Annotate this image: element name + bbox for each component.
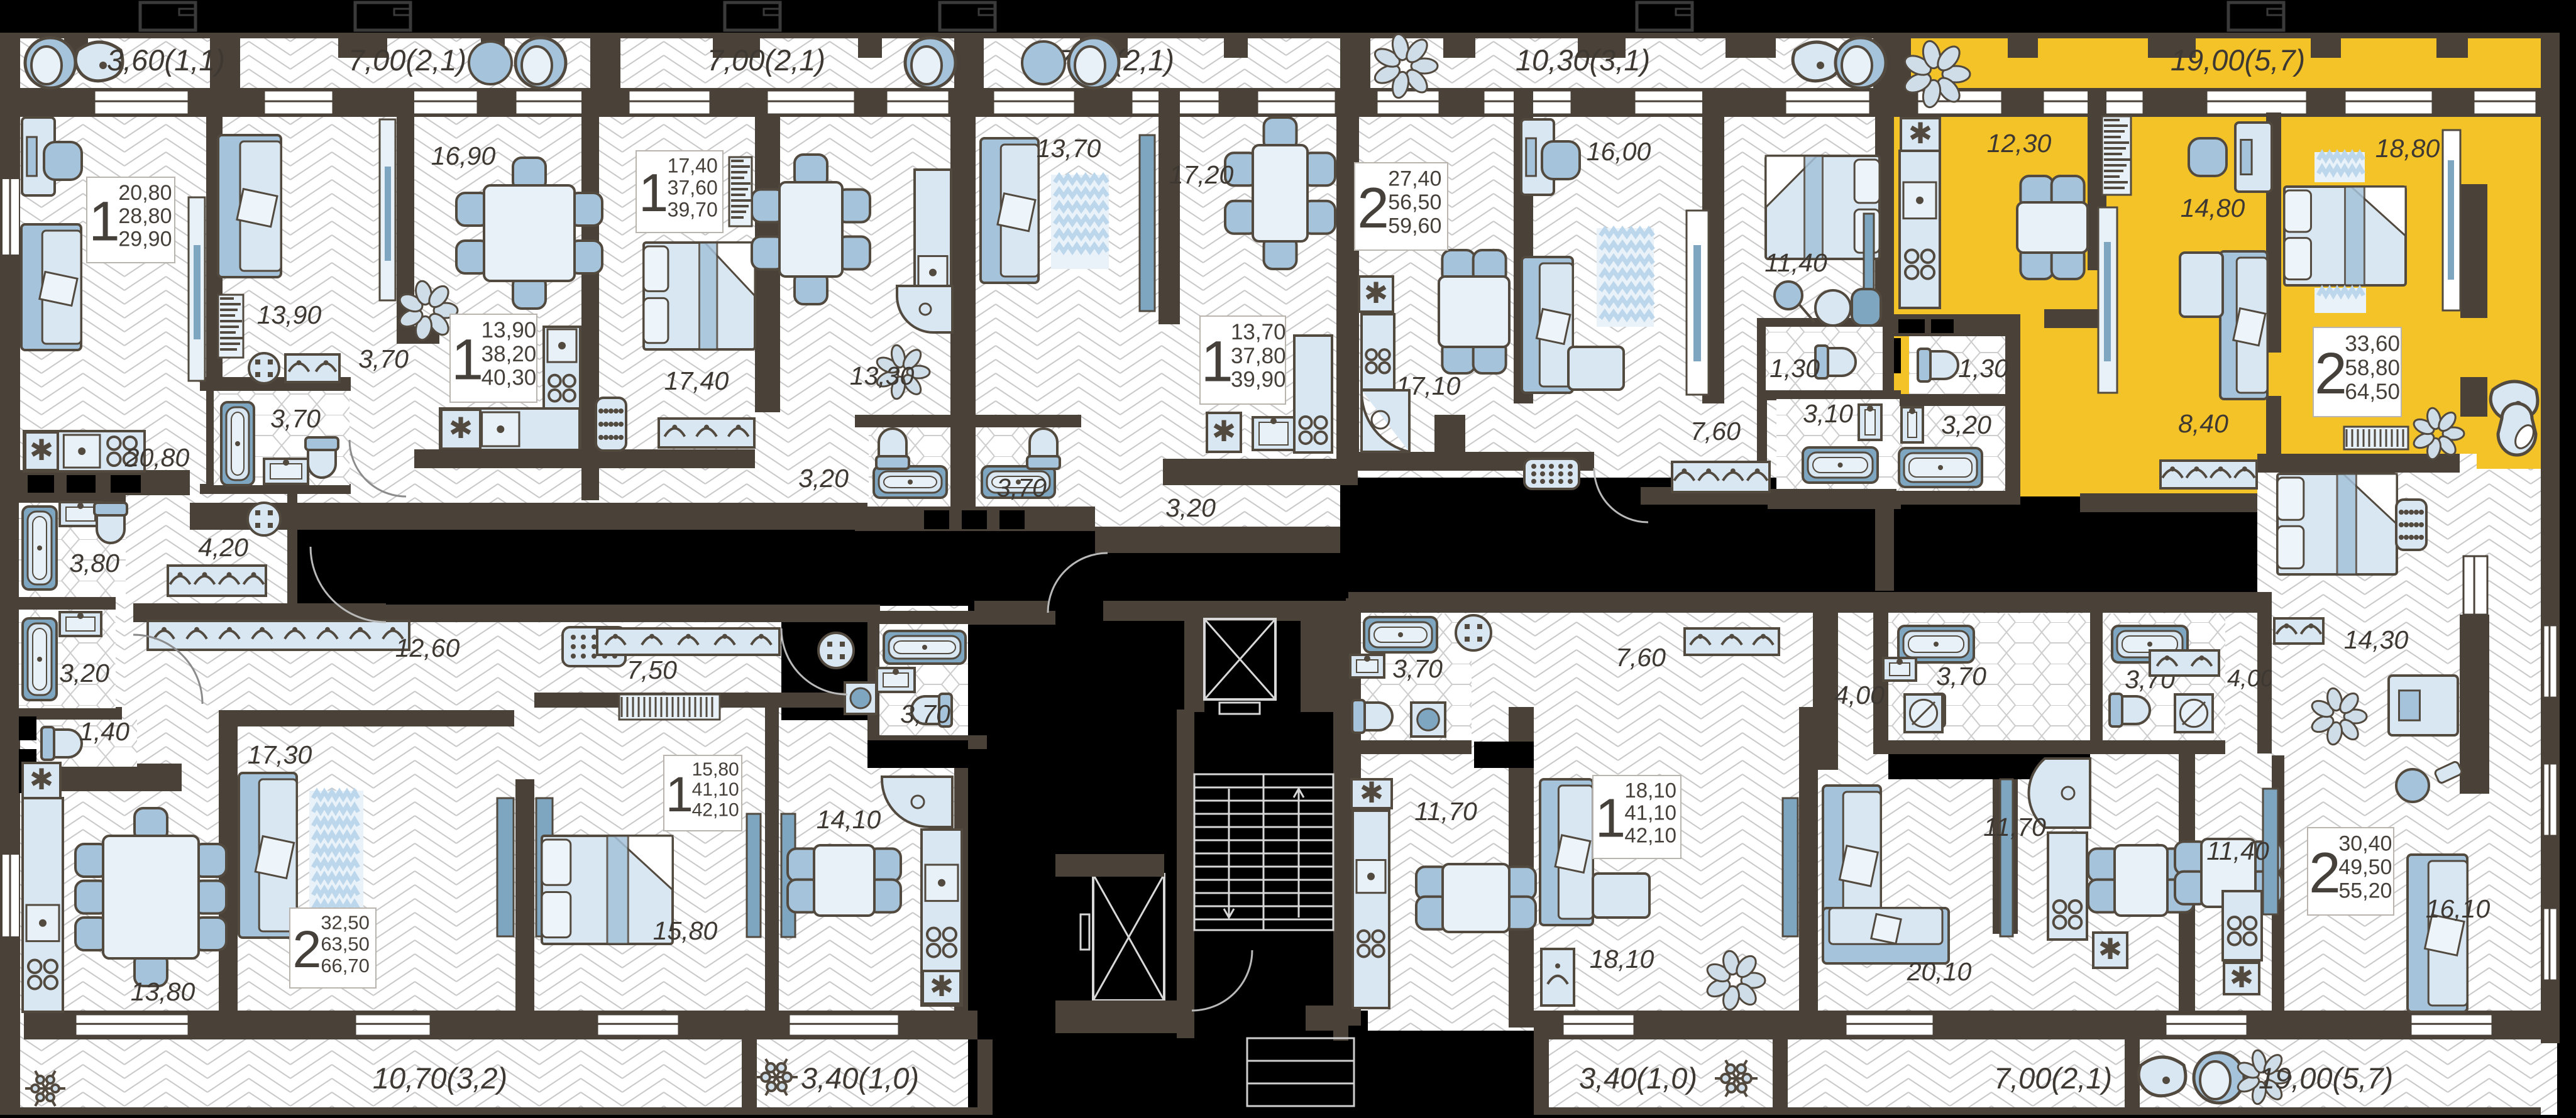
svg-text:1,40: 1,40 xyxy=(79,717,129,746)
svg-text:15,80: 15,80 xyxy=(653,916,718,945)
svg-text:1,30: 1,30 xyxy=(1770,354,1820,383)
svg-text:33,60: 33,60 xyxy=(2345,331,2400,356)
svg-text:3,70: 3,70 xyxy=(1936,662,1986,691)
svg-text:56,50: 56,50 xyxy=(1388,190,1441,214)
svg-text:3,70: 3,70 xyxy=(1392,654,1443,683)
svg-text:3,60(1,1): 3,60(1,1) xyxy=(107,43,225,77)
svg-text:3,40(1,0): 3,40(1,0) xyxy=(801,1061,919,1095)
svg-text:11,70: 11,70 xyxy=(1983,813,2046,841)
svg-text:✱: ✱ xyxy=(30,434,54,466)
svg-text:58,80: 58,80 xyxy=(2345,356,2400,380)
svg-text:3,70: 3,70 xyxy=(996,473,1047,502)
svg-text:11,40: 11,40 xyxy=(2206,836,2269,865)
svg-text:13,70: 13,70 xyxy=(1231,320,1286,344)
svg-text:17,30: 17,30 xyxy=(248,740,312,769)
svg-text:✱: ✱ xyxy=(449,412,473,444)
svg-text:16,00: 16,00 xyxy=(1587,137,1651,166)
svg-text:3,70: 3,70 xyxy=(270,404,321,433)
svg-text:63,50: 63,50 xyxy=(321,933,370,955)
svg-text:✱: ✱ xyxy=(2230,961,2254,994)
svg-text:59,60: 59,60 xyxy=(1388,214,1441,238)
svg-text:16,10: 16,10 xyxy=(2426,894,2491,923)
svg-text:2: 2 xyxy=(2315,341,2347,406)
svg-text:20,80: 20,80 xyxy=(118,181,172,205)
svg-text:41,10: 41,10 xyxy=(1624,801,1676,825)
svg-text:40,30: 40,30 xyxy=(482,366,537,390)
svg-text:17,40: 17,40 xyxy=(668,154,718,177)
svg-text:18,80: 18,80 xyxy=(2375,134,2440,163)
svg-text:✱: ✱ xyxy=(1908,117,1933,150)
svg-text:3,20: 3,20 xyxy=(1165,493,1216,522)
svg-text:1: 1 xyxy=(1595,788,1626,849)
svg-text:8,40: 8,40 xyxy=(2178,409,2228,438)
svg-text:29,90: 29,90 xyxy=(118,227,172,251)
svg-text:32,50: 32,50 xyxy=(321,911,370,933)
svg-text:1: 1 xyxy=(639,163,668,223)
svg-text:7,00(2,1): 7,00(2,1) xyxy=(348,43,466,77)
svg-text:14,10: 14,10 xyxy=(817,805,881,834)
svg-text:3,20: 3,20 xyxy=(1941,410,1991,439)
svg-text:1: 1 xyxy=(666,766,693,822)
svg-text:3,20: 3,20 xyxy=(59,659,109,688)
svg-text:7,00(2,1): 7,00(2,1) xyxy=(707,43,825,77)
svg-text:10,30(3,1): 10,30(3,1) xyxy=(1516,43,1650,77)
svg-text:13,90: 13,90 xyxy=(482,318,537,343)
svg-text:12,30: 12,30 xyxy=(1987,129,2052,158)
svg-text:7,50: 7,50 xyxy=(627,655,677,684)
svg-text:10,70(3,2): 10,70(3,2) xyxy=(373,1061,507,1095)
svg-text:39,90: 39,90 xyxy=(1231,368,1286,392)
svg-text:17,40: 17,40 xyxy=(664,366,729,395)
svg-text:12,60: 12,60 xyxy=(395,633,460,662)
svg-text:20,10: 20,10 xyxy=(1907,957,1972,986)
svg-text:✱: ✱ xyxy=(1360,776,1384,809)
svg-text:14,30: 14,30 xyxy=(2344,625,2409,654)
svg-text:7,60: 7,60 xyxy=(1616,643,1666,672)
svg-text:13,90: 13,90 xyxy=(257,300,322,329)
svg-text:30,40: 30,40 xyxy=(2338,832,2392,856)
svg-text:3,40(1,0): 3,40(1,0) xyxy=(1579,1061,1697,1095)
svg-text:64,50: 64,50 xyxy=(2345,380,2400,404)
svg-text:✱: ✱ xyxy=(2098,933,2123,965)
svg-text:2: 2 xyxy=(1357,177,1389,240)
svg-text:3,20: 3,20 xyxy=(798,464,849,493)
svg-text:49,50: 49,50 xyxy=(2338,855,2392,879)
svg-text:7,00(2,1): 7,00(2,1) xyxy=(1994,1061,2112,1095)
svg-text:20,80: 20,80 xyxy=(124,443,190,472)
svg-text:28,80: 28,80 xyxy=(118,204,172,228)
svg-text:1,30: 1,30 xyxy=(1958,354,2008,383)
svg-text:42,10: 42,10 xyxy=(692,800,739,821)
svg-text:✱: ✱ xyxy=(1212,415,1236,447)
svg-text:✱: ✱ xyxy=(30,763,54,796)
svg-text:27,40: 27,40 xyxy=(1388,167,1441,191)
svg-text:3,70: 3,70 xyxy=(358,344,409,373)
svg-text:39,70: 39,70 xyxy=(668,198,718,221)
svg-text:13,30: 13,30 xyxy=(850,361,915,390)
svg-text:42,10: 42,10 xyxy=(1624,823,1676,847)
svg-text:19,00(5,7): 19,00(5,7) xyxy=(2171,43,2305,77)
svg-text:55,20: 55,20 xyxy=(2338,879,2392,903)
svg-text:2: 2 xyxy=(2309,841,2341,905)
svg-text:2: 2 xyxy=(292,920,321,978)
svg-text:37,60: 37,60 xyxy=(668,176,718,199)
svg-text:11,40: 11,40 xyxy=(1764,248,1827,277)
svg-text:3,10: 3,10 xyxy=(1803,399,1853,428)
svg-text:66,70: 66,70 xyxy=(321,955,370,977)
svg-text:19,00(5,7): 19,00(5,7) xyxy=(2259,1061,2393,1095)
svg-text:37,80: 37,80 xyxy=(1231,344,1286,368)
svg-text:38,20: 38,20 xyxy=(482,342,537,366)
svg-text:✱: ✱ xyxy=(1364,277,1389,309)
svg-text:4,00: 4,00 xyxy=(2227,666,2274,692)
svg-text:16,90: 16,90 xyxy=(431,141,496,170)
svg-text:7,60: 7,60 xyxy=(1690,417,1741,446)
svg-text:41,10: 41,10 xyxy=(692,779,739,800)
svg-text:4,00: 4,00 xyxy=(1834,681,1885,710)
svg-text:✱: ✱ xyxy=(930,970,954,1002)
svg-text:17,20: 17,20 xyxy=(1169,160,1234,189)
svg-text:13,70: 13,70 xyxy=(1037,134,1101,163)
svg-text:18,10: 18,10 xyxy=(1624,779,1676,802)
svg-text:11,70: 11,70 xyxy=(1414,797,1477,826)
svg-text:18,10: 18,10 xyxy=(1590,945,1654,973)
svg-text:4,20: 4,20 xyxy=(198,533,248,562)
svg-text:1: 1 xyxy=(1201,330,1233,394)
svg-text:15,80: 15,80 xyxy=(692,759,739,780)
svg-text:3,80: 3,80 xyxy=(69,549,119,578)
svg-text:3,70: 3,70 xyxy=(900,699,950,728)
svg-text:14,80: 14,80 xyxy=(2181,194,2245,222)
svg-text:13,80: 13,80 xyxy=(131,977,195,1006)
svg-text:1: 1 xyxy=(89,190,120,253)
svg-text:1: 1 xyxy=(451,328,483,392)
